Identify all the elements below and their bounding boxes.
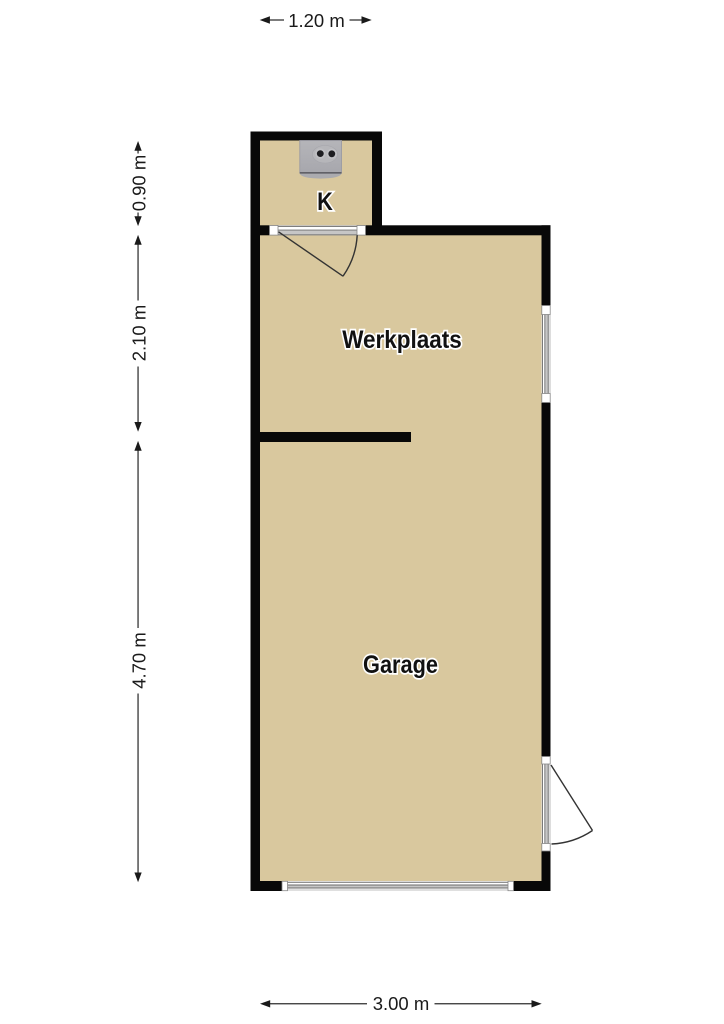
svg-text:1.20 m: 1.20 m bbox=[288, 10, 345, 31]
svg-text:0.90 m: 0.90 m bbox=[128, 155, 149, 212]
svg-text:2.10 m: 2.10 m bbox=[128, 305, 149, 362]
svg-text:Garage: Garage bbox=[363, 651, 438, 679]
svg-text:3.00 m: 3.00 m bbox=[373, 993, 430, 1014]
svg-text:K: K bbox=[317, 188, 333, 216]
svg-text:4.70 m: 4.70 m bbox=[128, 632, 149, 689]
svg-text:Werkplaats: Werkplaats bbox=[342, 326, 462, 354]
